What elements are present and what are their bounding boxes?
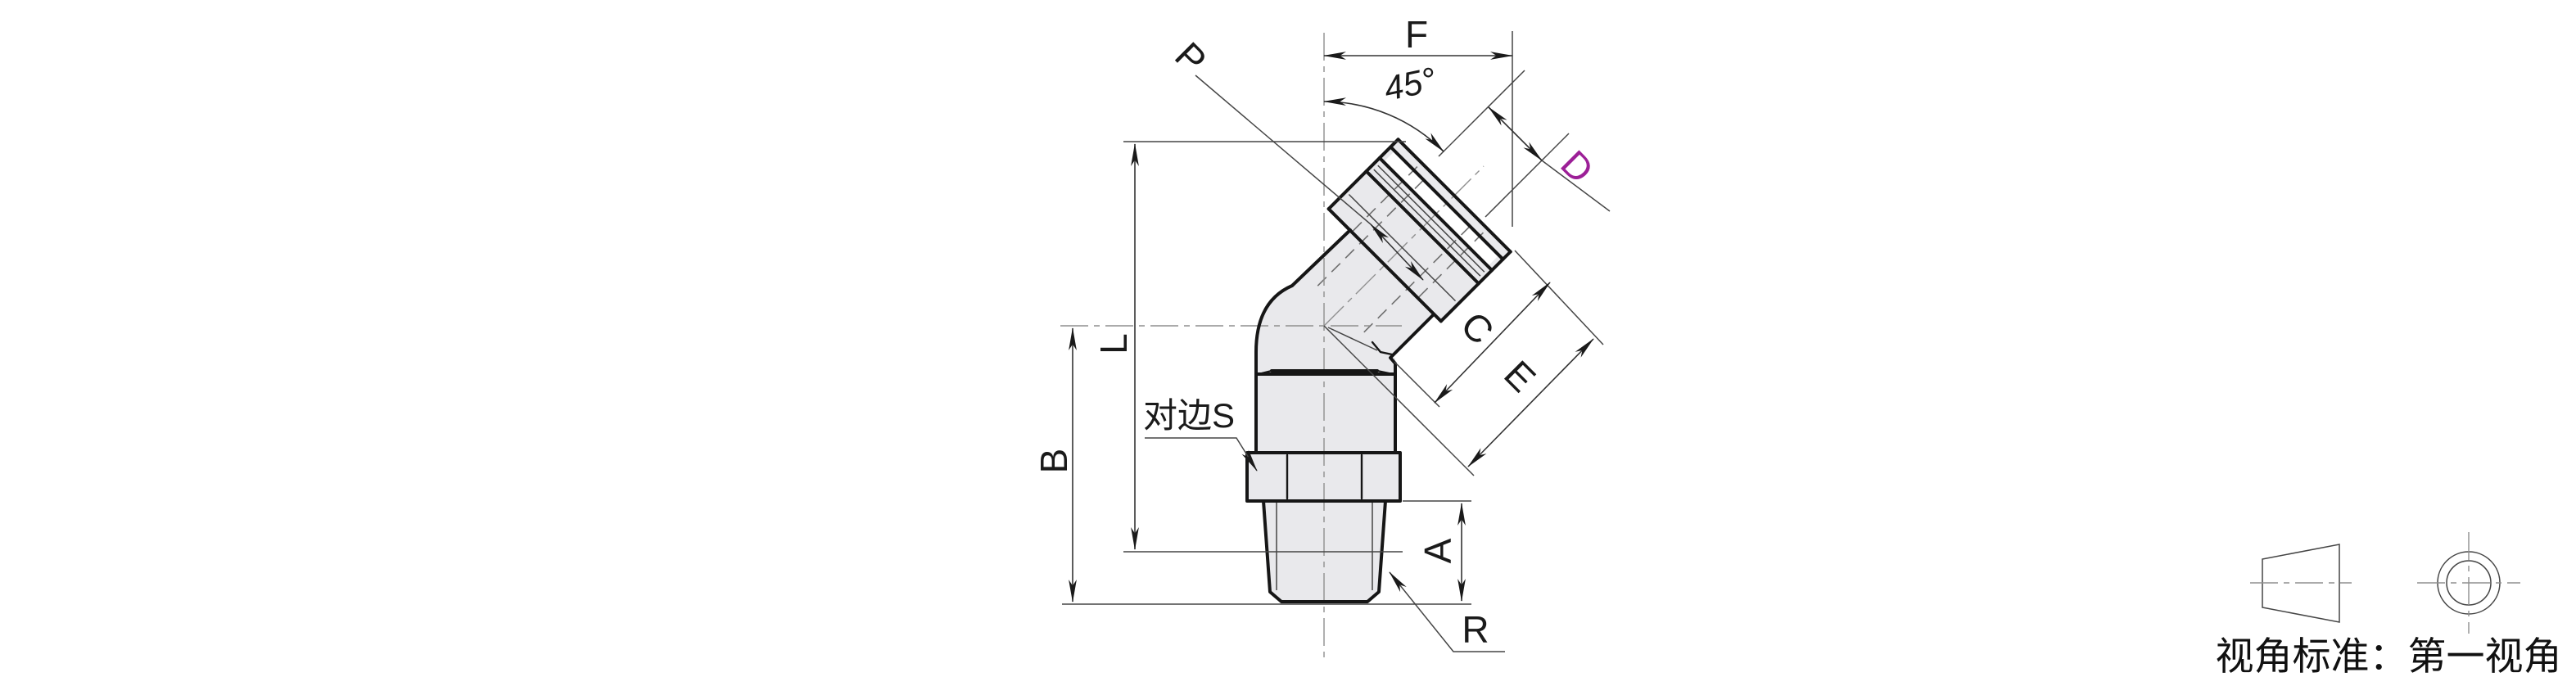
dim-label-e: E (1496, 352, 1543, 399)
across-flats-leader (1145, 438, 1257, 471)
drawing-canvas: F 45° P D C E L B A R 对边S 视角标准：第一视角 (0, 0, 2576, 677)
technical-drawing-45deg-elbow-fitting: F 45° P D C E L B A R 对边S 视角标准：第一视角 (0, 0, 2576, 677)
dim-label-r: R (1462, 608, 1489, 651)
projection-standard-note: 视角标准：第一视角 (2216, 634, 2562, 677)
projection-symbol: 视角标准：第一视角 (2216, 532, 2562, 677)
dim-label-45deg: 45° (1381, 60, 1439, 108)
dim-label-f: F (1405, 13, 1428, 56)
end-corner-extension (1515, 250, 1603, 345)
dim-label-c: C (1453, 303, 1502, 352)
dim-label-p: P (1167, 34, 1214, 81)
dim-label-d: D (1552, 142, 1602, 191)
dim-label-l: L (1092, 333, 1135, 354)
dim-label-across-flats: 对边S (1143, 396, 1235, 435)
dim-label-b: B (1033, 449, 1075, 474)
p-leader-line (1195, 75, 1371, 224)
dim-line-D (1489, 107, 1542, 160)
dim-label-a: A (1417, 538, 1459, 563)
angle-arc-45deg (1324, 102, 1444, 151)
c-lower-extension (1394, 362, 1439, 407)
